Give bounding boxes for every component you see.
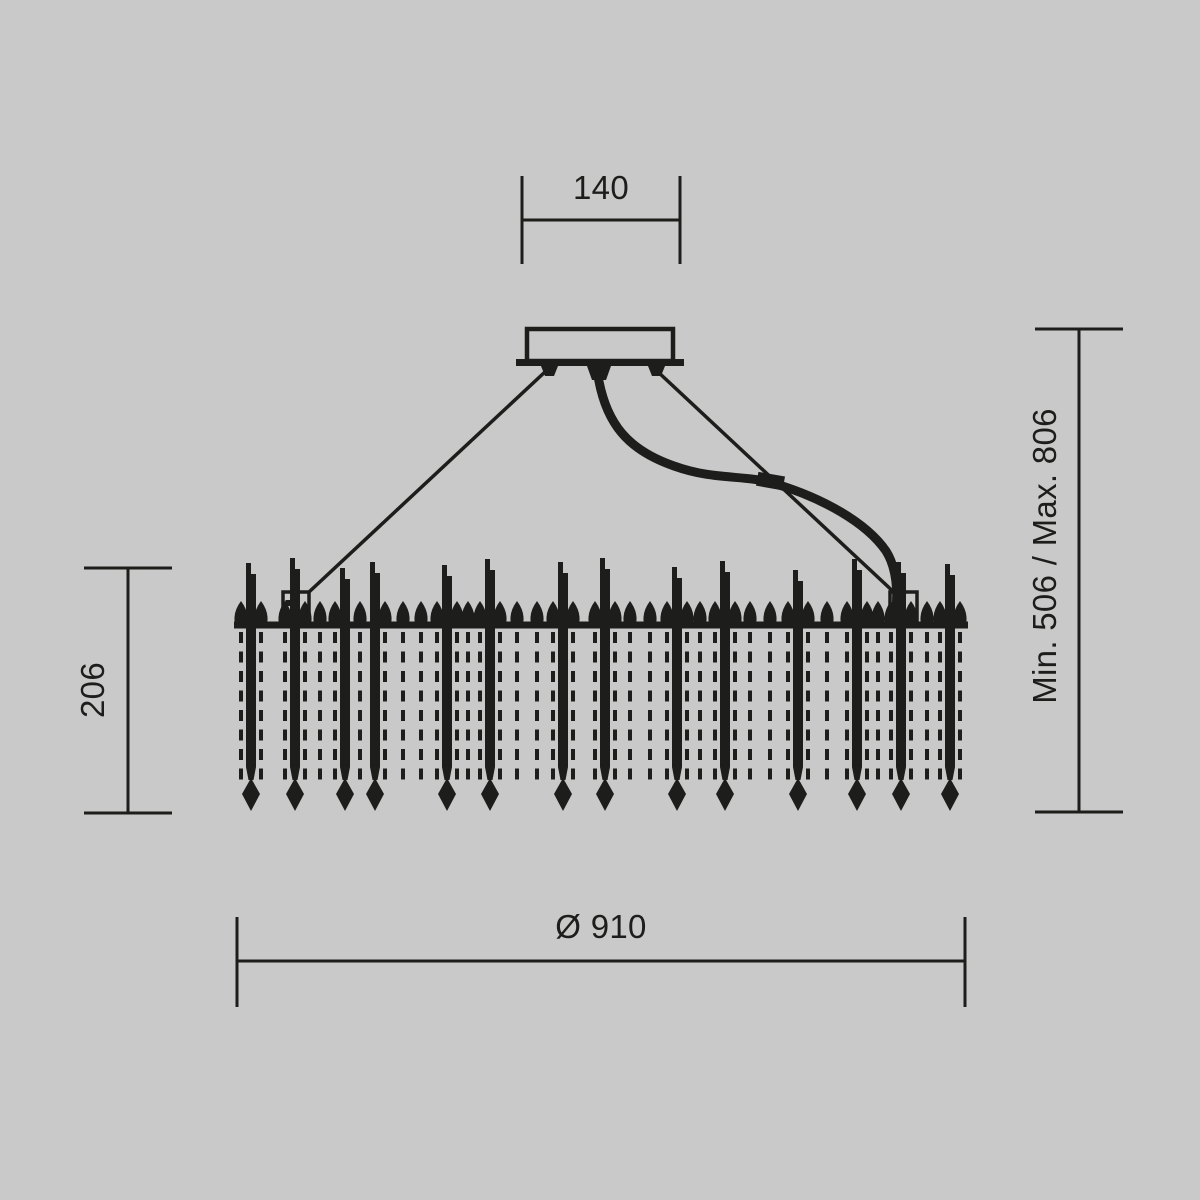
crystal-bud xyxy=(860,601,873,627)
rod-body xyxy=(370,573,380,767)
rod-crystal-drop xyxy=(668,778,686,811)
crystal-bud xyxy=(313,601,326,627)
dimension-body-height: 206 xyxy=(74,568,172,813)
rod-crystal-drop xyxy=(596,778,614,811)
left-anchor-screw xyxy=(286,610,291,616)
crystal-bud xyxy=(781,601,794,627)
rod-body xyxy=(442,576,452,767)
crystal-bud xyxy=(623,601,636,627)
crystal-bud xyxy=(728,601,741,627)
left-suspension-cable xyxy=(309,371,546,592)
rod-crystal-drop xyxy=(554,778,572,811)
crystal-bud xyxy=(566,601,579,627)
rod-crystal-drop xyxy=(286,778,304,811)
crystal-bud xyxy=(743,601,756,627)
crystal-bud xyxy=(680,601,693,627)
canopy-baseplate xyxy=(516,359,684,366)
crystal-bud xyxy=(840,601,853,627)
crystal-bud xyxy=(801,601,814,627)
crystal-bud xyxy=(414,601,427,627)
crystal-bud xyxy=(461,601,474,627)
rod-crystal-drop xyxy=(789,778,807,811)
crystal-bud xyxy=(473,601,486,627)
rod-body xyxy=(672,578,682,767)
rod-body xyxy=(720,572,730,767)
rod-crystal-drop xyxy=(336,778,354,811)
fixture-body xyxy=(234,558,968,811)
right-anchor-screw xyxy=(893,610,898,616)
crystal-bud xyxy=(328,601,341,627)
crystal-bud xyxy=(920,601,933,627)
power-cord xyxy=(598,376,897,610)
rod-body xyxy=(246,574,256,767)
crystal-bud xyxy=(871,601,884,627)
rod-body xyxy=(558,573,568,767)
rod-crystal-drop xyxy=(481,778,499,811)
crystal-bud xyxy=(763,601,776,627)
rod-body xyxy=(290,569,300,767)
crystal-bud xyxy=(546,601,559,627)
crystal-bud xyxy=(353,601,366,627)
suspension-height-label: Min. 506 / Max. 806 xyxy=(1026,408,1063,704)
rod-crystal-drop xyxy=(366,778,384,811)
crystal-bud xyxy=(660,601,673,627)
crystal-bud xyxy=(510,601,523,627)
dimension-diameter: Ø 910 xyxy=(237,908,965,1007)
canopy-body xyxy=(527,329,673,361)
rod-body xyxy=(945,575,955,767)
crystal-bud xyxy=(254,601,267,627)
crystal-bud xyxy=(430,601,443,627)
technical-drawing-page: 140 206 Min. 506 / Max. 806 Ø 910 xyxy=(0,0,1200,1200)
crystal-bud xyxy=(396,601,409,627)
rod-body xyxy=(852,570,862,767)
rod-body xyxy=(485,570,495,767)
left-anchor-screw xyxy=(286,600,291,606)
crystal-bud xyxy=(953,601,966,627)
crystal-bud xyxy=(933,601,946,627)
crystal-bud xyxy=(820,601,833,627)
rod-crystal-drop xyxy=(848,778,866,811)
crystal-bud xyxy=(450,601,463,627)
dimension-suspension-height: Min. 506 / Max. 806 xyxy=(1026,329,1123,812)
chandelier-dimension-drawing: 140 206 Min. 506 / Max. 806 Ø 910 xyxy=(0,0,1200,1200)
crystal-bud xyxy=(608,601,621,627)
diameter-label: Ø 910 xyxy=(555,908,646,945)
crystal-bud xyxy=(493,601,506,627)
crystal-bud xyxy=(530,601,543,627)
crystal-bud xyxy=(643,601,656,627)
crystal-bud xyxy=(378,601,391,627)
rod-body xyxy=(340,579,350,767)
cord-clip xyxy=(756,472,785,490)
crystal-bud xyxy=(234,601,247,627)
crystal-bud xyxy=(588,601,601,627)
rod-crystal-drop xyxy=(242,778,260,811)
canopy-width-label: 140 xyxy=(573,169,629,206)
rod-crystal-drop xyxy=(892,778,910,811)
crystal-bud xyxy=(708,601,721,627)
body-height-label: 206 xyxy=(74,662,111,718)
rod-crystal-drop xyxy=(438,778,456,811)
rod-body xyxy=(600,569,610,767)
rod-body xyxy=(793,581,803,767)
rod-crystal-drop xyxy=(716,778,734,811)
dimension-canopy-width: 140 xyxy=(522,169,680,264)
crystal-bud xyxy=(693,601,706,627)
rod-crystal-drop xyxy=(941,778,959,811)
right-anchor-screw xyxy=(893,600,898,606)
